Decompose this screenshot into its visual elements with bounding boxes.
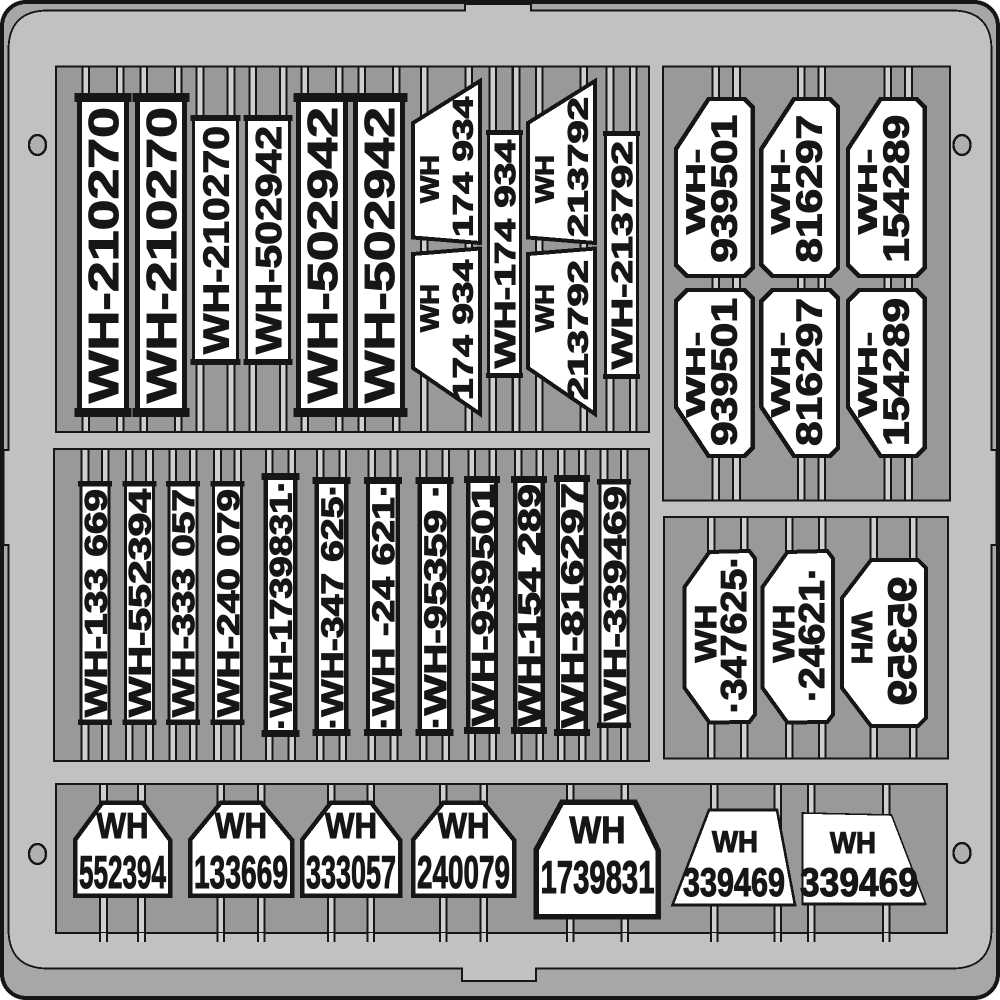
svg-text:154289: 154289 (875, 115, 916, 263)
svg-text:·24621·: ·24621· (791, 567, 832, 702)
svg-text:WH: WH (415, 155, 445, 203)
svg-text:339469: 339469 (683, 861, 785, 905)
svg-text:240079: 240079 (417, 846, 510, 898)
svg-text:·WH -24 621·: ·WH -24 621· (366, 484, 401, 730)
svg-text:133669: 133669 (194, 846, 288, 898)
svg-text:816297: 816297 (789, 115, 830, 263)
svg-text:1739831: 1739831 (541, 851, 655, 903)
svg-text:WH-552394: WH-552394 (123, 488, 158, 717)
svg-text:816297: 816297 (789, 298, 830, 446)
svg-text:552394: 552394 (79, 846, 166, 898)
svg-text:154289: 154289 (875, 298, 916, 446)
svg-text:WH-339469: WH-339469 (597, 486, 632, 721)
svg-text:·WH-347 625·: ·WH-347 625· (315, 484, 350, 730)
svg-text:WH-502942: WH-502942 (248, 126, 289, 354)
svg-text:339469: 339469 (800, 861, 918, 905)
svg-text:95359: 95359 (881, 577, 925, 706)
svg-text:WH: WH (830, 827, 876, 860)
svg-text:WH: WH (415, 284, 445, 332)
svg-text:WH-333 057: WH-333 057 (166, 489, 201, 717)
svg-text:WH-816297: WH-816297 (555, 483, 590, 728)
svg-text:WH: WH (570, 810, 626, 852)
svg-text:·WH-1739831·: ·WH-1739831· (264, 480, 299, 730)
svg-text:WH-210270: WH-210270 (138, 107, 185, 403)
svg-text:WH: WH (530, 155, 560, 203)
svg-text:WH: WH (530, 284, 560, 332)
svg-text:WH-210270: WH-210270 (196, 126, 237, 354)
svg-text:939501: 939501 (703, 298, 744, 446)
svg-text:WH-154 289: WH-154 289 (512, 484, 547, 726)
svg-text:WH: WH (215, 805, 267, 846)
svg-text:WH-213792: WH-213792 (607, 141, 639, 369)
svg-text:WH: WH (97, 805, 149, 846)
svg-text:WH-240 079: WH-240 079 (211, 489, 246, 717)
svg-text:WH: WH (712, 826, 758, 859)
svg-text:WH-939501: WH-939501 (465, 484, 500, 726)
svg-text:WH-174 934: WH-174 934 (490, 140, 522, 368)
svg-text:WH: WH (845, 612, 877, 665)
svg-text:WH: WH (438, 805, 490, 846)
svg-text:WH: WH (325, 805, 377, 846)
svg-text:WH-133 669: WH-133 669 (78, 489, 113, 717)
svg-text:174 934: 174 934 (448, 259, 479, 400)
svg-text:WH-502942: WH-502942 (356, 107, 403, 403)
svg-text:213792: 213792 (563, 97, 594, 237)
svg-text:WH-210270: WH-210270 (80, 107, 127, 403)
svg-text:333057: 333057 (306, 846, 396, 898)
svg-text:WH-502942: WH-502942 (299, 107, 346, 403)
svg-text:939501: 939501 (703, 115, 744, 263)
svg-text:174 934: 174 934 (448, 96, 479, 237)
svg-text:·347625·: ·347625· (713, 556, 754, 714)
svg-text:·WH-95359 ·: ·WH-95359 · (418, 484, 453, 730)
svg-text:213792: 213792 (563, 260, 594, 400)
